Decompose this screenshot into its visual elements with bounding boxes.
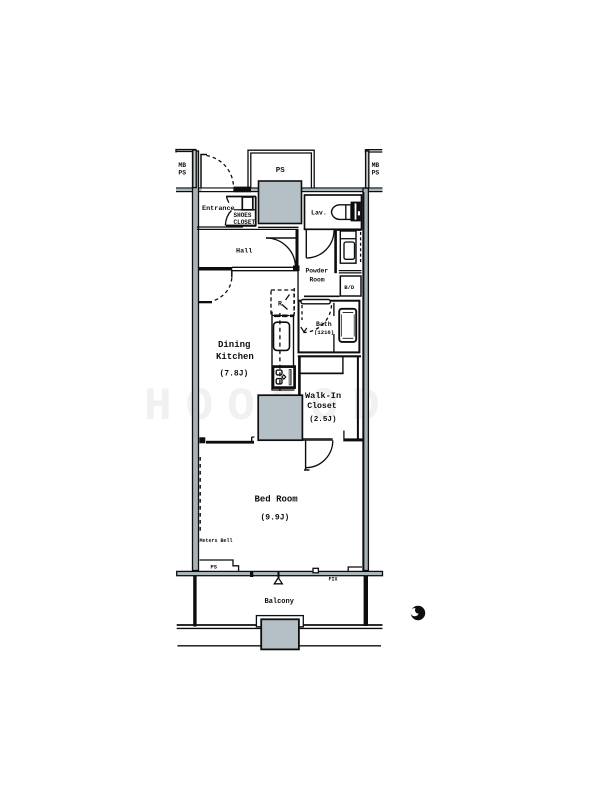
svg-text:(2.5J): (2.5J) [309, 416, 336, 424]
svg-text:(7.8J): (7.8J) [220, 369, 249, 378]
svg-text:Dining: Dining [218, 340, 250, 350]
svg-text:PS: PS [372, 170, 380, 177]
svg-text:Kitchen: Kitchen [216, 352, 254, 362]
svg-text:Lav.: Lav. [311, 210, 327, 217]
svg-text:(9.9J): (9.9J) [261, 513, 290, 522]
svg-text:Meters Bell: Meters Bell [200, 538, 233, 544]
svg-text:MB: MB [178, 162, 186, 169]
svg-text:Hall: Hall [236, 248, 252, 256]
svg-text:Room: Room [310, 277, 325, 284]
svg-text:PS: PS [211, 564, 218, 570]
svg-text:B/D: B/D [344, 284, 355, 291]
svg-text:MB: MB [372, 162, 380, 169]
svg-text:PS: PS [178, 170, 186, 177]
svg-text:R: R [278, 301, 282, 308]
svg-text:PS: PS [276, 167, 286, 175]
svg-text:Closet: Closet [307, 401, 337, 411]
svg-text:FIX: FIX [329, 576, 338, 582]
svg-text:Balcony: Balcony [265, 598, 295, 606]
svg-text:(1216): (1216) [314, 329, 334, 336]
svg-text:Walk-In: Walk-In [305, 391, 341, 401]
svg-text:Bed Room: Bed Room [255, 495, 299, 505]
svg-text:Powder: Powder [306, 268, 329, 275]
